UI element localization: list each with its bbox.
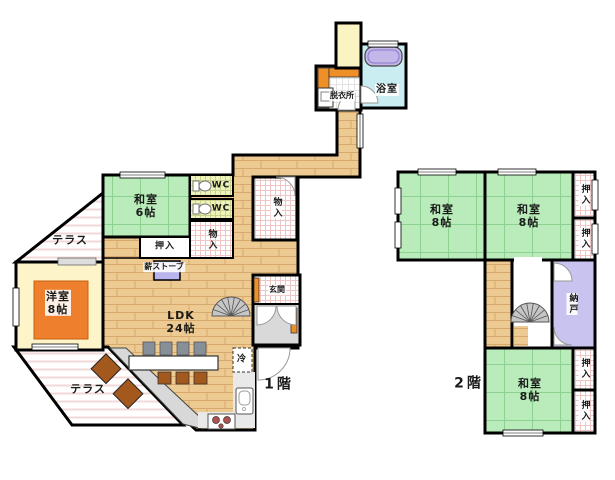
counter-stools <box>158 372 207 384</box>
label-nando: 納戸 <box>567 293 578 315</box>
label-wc-top: WC <box>212 181 231 192</box>
hallway-2f-patch <box>514 326 528 346</box>
corridor-window <box>357 114 363 148</box>
label-monoire-right: 物入 <box>271 197 282 219</box>
floor-plan-drawing <box>0 0 615 480</box>
label-oshiire-2f-middle: 押入 <box>579 228 590 250</box>
hallway-2f <box>485 260 512 348</box>
washitsu6-window <box>120 172 165 178</box>
label-fridge: 冷 <box>237 355 247 366</box>
toilet-icon <box>193 204 211 214</box>
shoe-cabinet <box>254 278 259 302</box>
bath-window <box>368 41 398 47</box>
label-washitsu8-left: 和室 8帖 <box>430 203 454 229</box>
label-monoire-center: 物入 <box>207 229 216 251</box>
label-oshiire-1f: 押入 <box>155 242 175 253</box>
label-oshiire-2f-top: 押入 <box>579 184 590 206</box>
gas-stove <box>208 414 235 429</box>
toilet-icon <box>193 181 211 191</box>
label-washitsu6: 和室 6帖 <box>134 193 158 219</box>
label-washitsu8-bottom: 和室 8帖 <box>518 377 542 403</box>
yoshitsu-window-left <box>13 288 19 326</box>
opening-2f-stairs <box>514 257 542 263</box>
label-terrace-upper: テラス <box>52 233 88 246</box>
floor-plan-canvas: 和室 6帖 押入 物入 物入 WC WC テラス テラス 洋室 8帖 LDK 2… <box>0 0 615 480</box>
terrace-upper <box>16 193 103 262</box>
label-yoshitsu8: 洋室 8帖 <box>45 290 71 316</box>
label-floor2: 2階 <box>454 376 484 393</box>
label-oshiire-2f-b1: 押入 <box>579 358 590 380</box>
label-oshiire-2f-b2: 押入 <box>579 400 590 422</box>
label-datsuijo: 脱衣所 <box>329 91 355 101</box>
label-genkan: 玄関 <box>268 285 286 295</box>
label-terrace-lower: テラス <box>70 382 106 395</box>
room-storage-top <box>336 23 361 68</box>
label-wc-bottom: WC <box>212 204 231 215</box>
label-bath: 浴室 <box>375 84 399 96</box>
label-wood-stove: 薪ストーブ <box>143 262 185 272</box>
yoshitsu-window-top <box>58 258 96 265</box>
label-washitsu8-right: 和室 8帖 <box>517 203 541 229</box>
kitchen-sink <box>236 388 253 414</box>
label-floor1: 1階 <box>264 377 294 394</box>
yoshitsu-window-bottom <box>32 344 78 350</box>
kitchen-counter <box>129 356 218 370</box>
label-ldk: LDK 24帖 <box>166 309 195 335</box>
door-arc-entrance <box>258 348 290 380</box>
